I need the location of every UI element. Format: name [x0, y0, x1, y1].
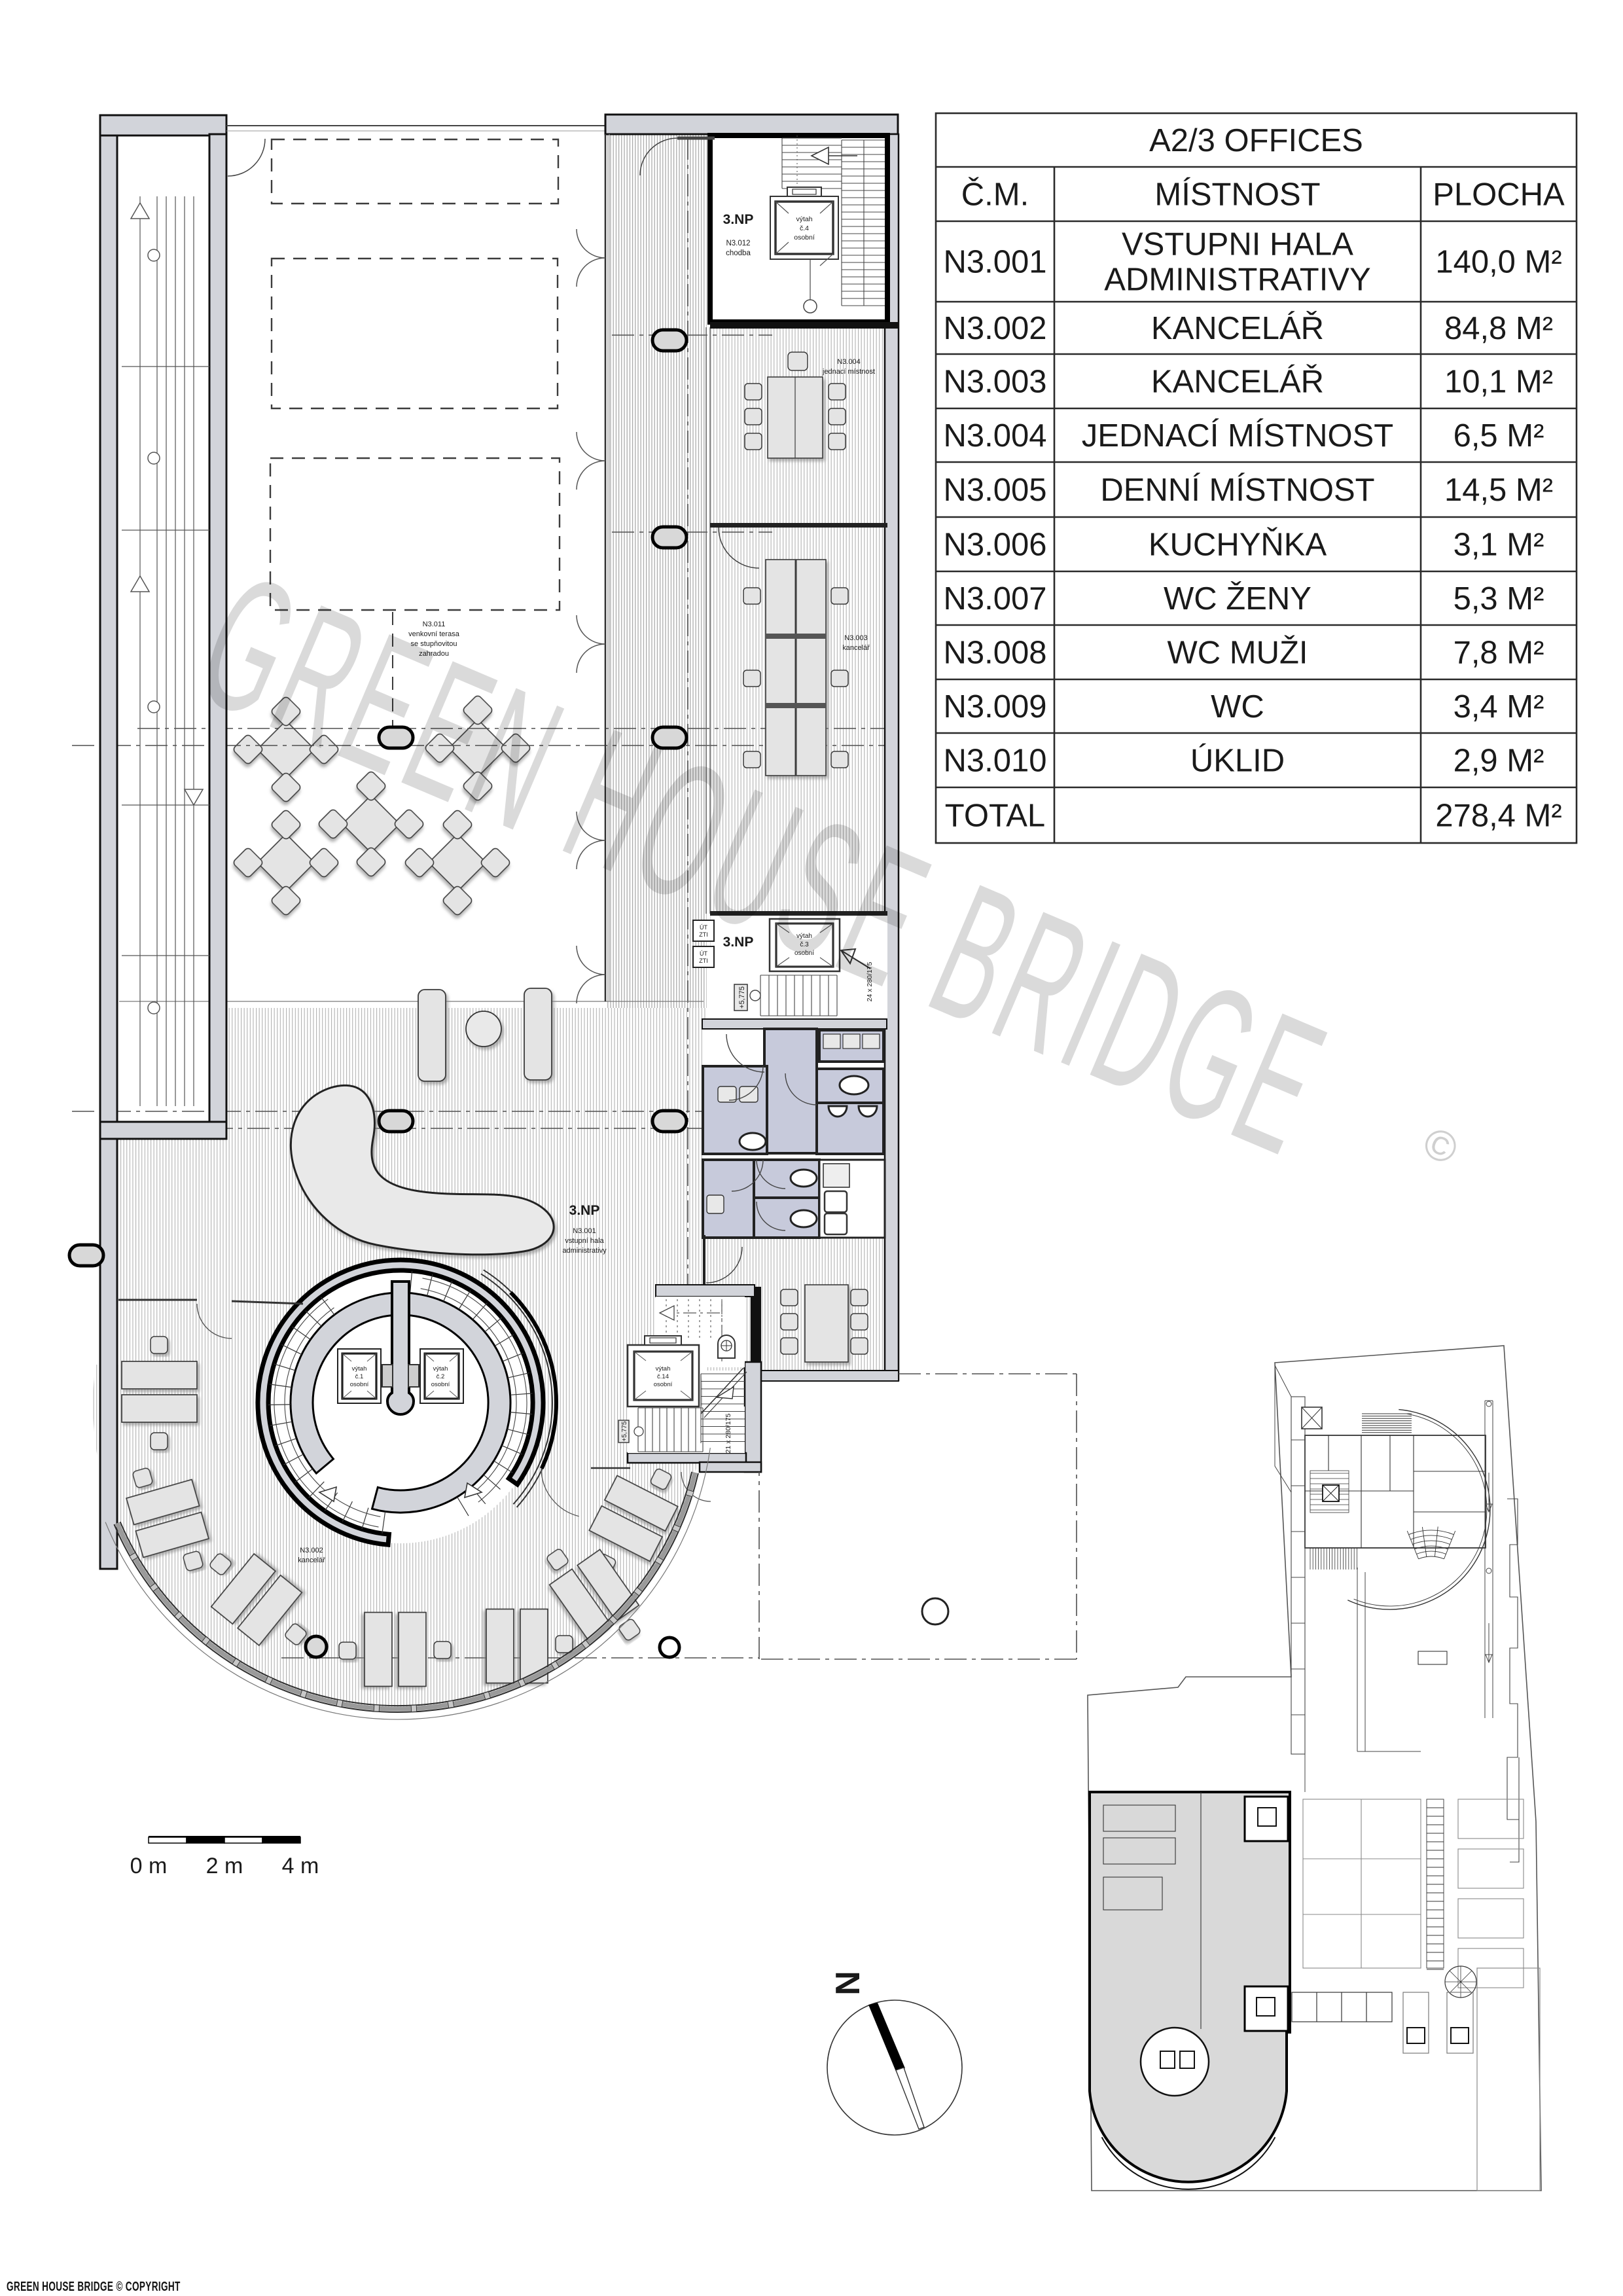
svg-text:N3.001: N3.001: [943, 245, 1046, 280]
svg-text:osobní: osobní: [794, 234, 815, 242]
svg-text:vstupní hala: vstupní hala: [565, 1237, 604, 1245]
svg-text:osobní: osobní: [350, 1381, 369, 1388]
svg-text:N3.010: N3.010: [943, 744, 1046, 779]
svg-text:+5,775: +5,775: [738, 986, 746, 1009]
svg-text:PLOCHA: PLOCHA: [1433, 177, 1565, 213]
svg-text:N3.012: N3.012: [726, 240, 750, 247]
svg-text:84,8 M²: 84,8 M²: [1444, 311, 1553, 346]
svg-text:jednací místnost: jednací místnost: [822, 368, 875, 376]
svg-text:+5,775: +5,775: [621, 1421, 628, 1441]
svg-text:Č.M.: Č.M.: [961, 177, 1029, 213]
svg-text:ADMINISTRATIVY: ADMINISTRATIVY: [1104, 262, 1370, 298]
svg-text:N3.002: N3.002: [943, 311, 1046, 346]
svg-text:WC ŽENY: WC ŽENY: [1164, 581, 1311, 617]
svg-text:3,4 M²: 3,4 M²: [1454, 689, 1544, 725]
svg-text:osobní: osobní: [654, 1381, 673, 1388]
svg-text:JEDNACÍ MÍSTNOST: JEDNACÍ MÍSTNOST: [1082, 418, 1393, 454]
svg-text:DENNÍ MÍSTNOST: DENNÍ MÍSTNOST: [1100, 473, 1374, 508]
svg-text:A2/3 OFFICES: A2/3 OFFICES: [1149, 123, 1363, 158]
svg-text:MÍSTNOST: MÍSTNOST: [1154, 177, 1320, 213]
svg-text:výtah: výtah: [796, 215, 812, 223]
svg-text:ÚKLID: ÚKLID: [1190, 744, 1285, 779]
svg-text:N3.009: N3.009: [943, 689, 1046, 725]
svg-text:6,5 M²: 6,5 M²: [1454, 418, 1544, 454]
svg-text:č.1: č.1: [355, 1373, 364, 1380]
svg-text:N3.003: N3.003: [844, 634, 867, 642]
svg-text:KANCELÁŘ: KANCELÁŘ: [1151, 311, 1324, 346]
svg-text:ZTI: ZTI: [699, 958, 708, 964]
svg-text:č.14: č.14: [657, 1373, 669, 1380]
svg-text:N3.008: N3.008: [943, 636, 1046, 671]
svg-text:2,9 M²: 2,9 M²: [1454, 744, 1544, 779]
svg-text:21 x 280/175: 21 x 280/175: [724, 1413, 732, 1453]
svg-text:KUCHYŇKA: KUCHYŇKA: [1149, 528, 1327, 563]
svg-text:kancelář: kancelář: [842, 644, 870, 652]
svg-text:N: N: [829, 1971, 867, 1996]
svg-text:N3.001: N3.001: [573, 1227, 596, 1235]
svg-text:VSTUPNI HALA: VSTUPNI HALA: [1122, 227, 1353, 262]
svg-text:č.2: č.2: [437, 1373, 445, 1380]
svg-text:výtah: výtah: [656, 1365, 671, 1372]
svg-text:osobní: osobní: [431, 1381, 450, 1388]
svg-text:3.NP: 3.NP: [569, 1203, 600, 1218]
svg-text:N3.004: N3.004: [943, 418, 1046, 454]
svg-text:GREEN HOUSE BRIDGE © COPYRIGH: GREEN HOUSE BRIDGE © COPYRIGHT: [7, 2279, 181, 2293]
svg-text:chodba: chodba: [726, 249, 751, 257]
svg-text:výtah: výtah: [352, 1365, 367, 1372]
svg-text:kancelář: kancelář: [298, 1556, 325, 1564]
svg-text:0 m: 0 m: [130, 1854, 168, 1878]
svg-text:7,8 M²: 7,8 M²: [1454, 636, 1544, 671]
svg-text:KANCELÁŘ: KANCELÁŘ: [1151, 365, 1324, 400]
svg-text:N3.005: N3.005: [943, 473, 1046, 508]
svg-text:WC: WC: [1211, 689, 1264, 725]
svg-text:278,4 M²: 278,4 M²: [1435, 798, 1561, 834]
svg-text:WC MUŽI: WC MUŽI: [1168, 636, 1308, 671]
svg-text:výtah: výtah: [433, 1365, 448, 1372]
svg-text:č.4: č.4: [800, 224, 809, 232]
svg-text:3,1 M²: 3,1 M²: [1454, 528, 1544, 563]
svg-text:10,1 M²: 10,1 M²: [1444, 365, 1553, 400]
svg-text:administrativy: administrativy: [562, 1247, 607, 1255]
svg-text:N3.004: N3.004: [837, 358, 860, 366]
svg-text:140,0 M²: 140,0 M²: [1435, 245, 1561, 280]
svg-text:14,5 M²: 14,5 M²: [1444, 473, 1553, 508]
svg-text:TOTAL: TOTAL: [945, 798, 1045, 834]
svg-text:3.NP: 3.NP: [723, 212, 754, 227]
svg-text:N3.003: N3.003: [943, 365, 1046, 400]
svg-text:N3.007: N3.007: [943, 581, 1046, 617]
svg-text:N3.002: N3.002: [300, 1547, 323, 1554]
svg-text:2 m: 2 m: [206, 1854, 243, 1878]
svg-text:N3.006: N3.006: [943, 528, 1046, 563]
svg-text:5,3 M²: 5,3 M²: [1454, 581, 1544, 617]
svg-text:4 m: 4 m: [282, 1854, 319, 1878]
